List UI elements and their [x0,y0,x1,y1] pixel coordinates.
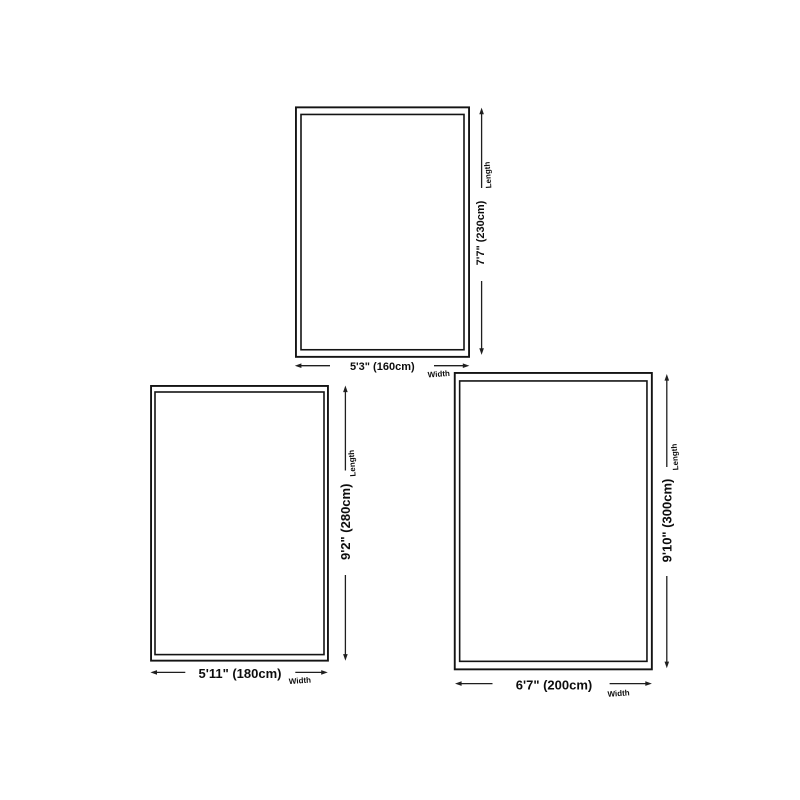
svg-text:Length: Length [670,443,681,470]
svg-text:5'3" (160cm): 5'3" (160cm) [350,361,415,373]
svg-text:5'11" (180cm): 5'11" (180cm) [199,666,282,681]
svg-text:Width: Width [427,369,450,380]
svg-text:Width: Width [289,676,312,687]
svg-text:Length: Length [347,449,358,476]
svg-text:7'7" (230cm): 7'7" (230cm) [475,200,487,265]
svg-text:9'10" (300cm): 9'10" (300cm) [659,479,674,563]
svg-text:9'2" (280cm): 9'2" (280cm) [338,484,353,560]
svg-text:Length: Length [483,161,494,188]
svg-text:6'7" (200cm): 6'7" (200cm) [516,677,592,692]
svg-text:Width: Width [607,688,630,699]
